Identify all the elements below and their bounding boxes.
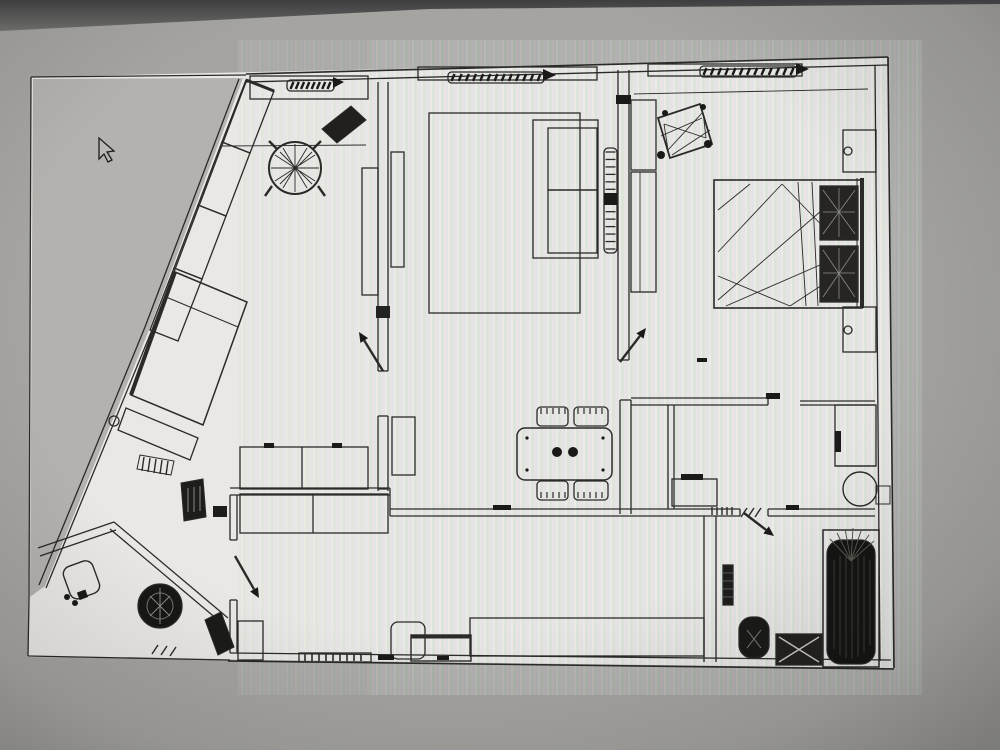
plan-layer [0, 0, 1000, 750]
photo-vignette [0, 0, 1000, 750]
screen-photo: Apartment floor plan (CAD drawing photog… [0, 0, 1000, 750]
floor-plan-canvas: Apartment floor plan (CAD drawing photog… [0, 0, 1000, 750]
